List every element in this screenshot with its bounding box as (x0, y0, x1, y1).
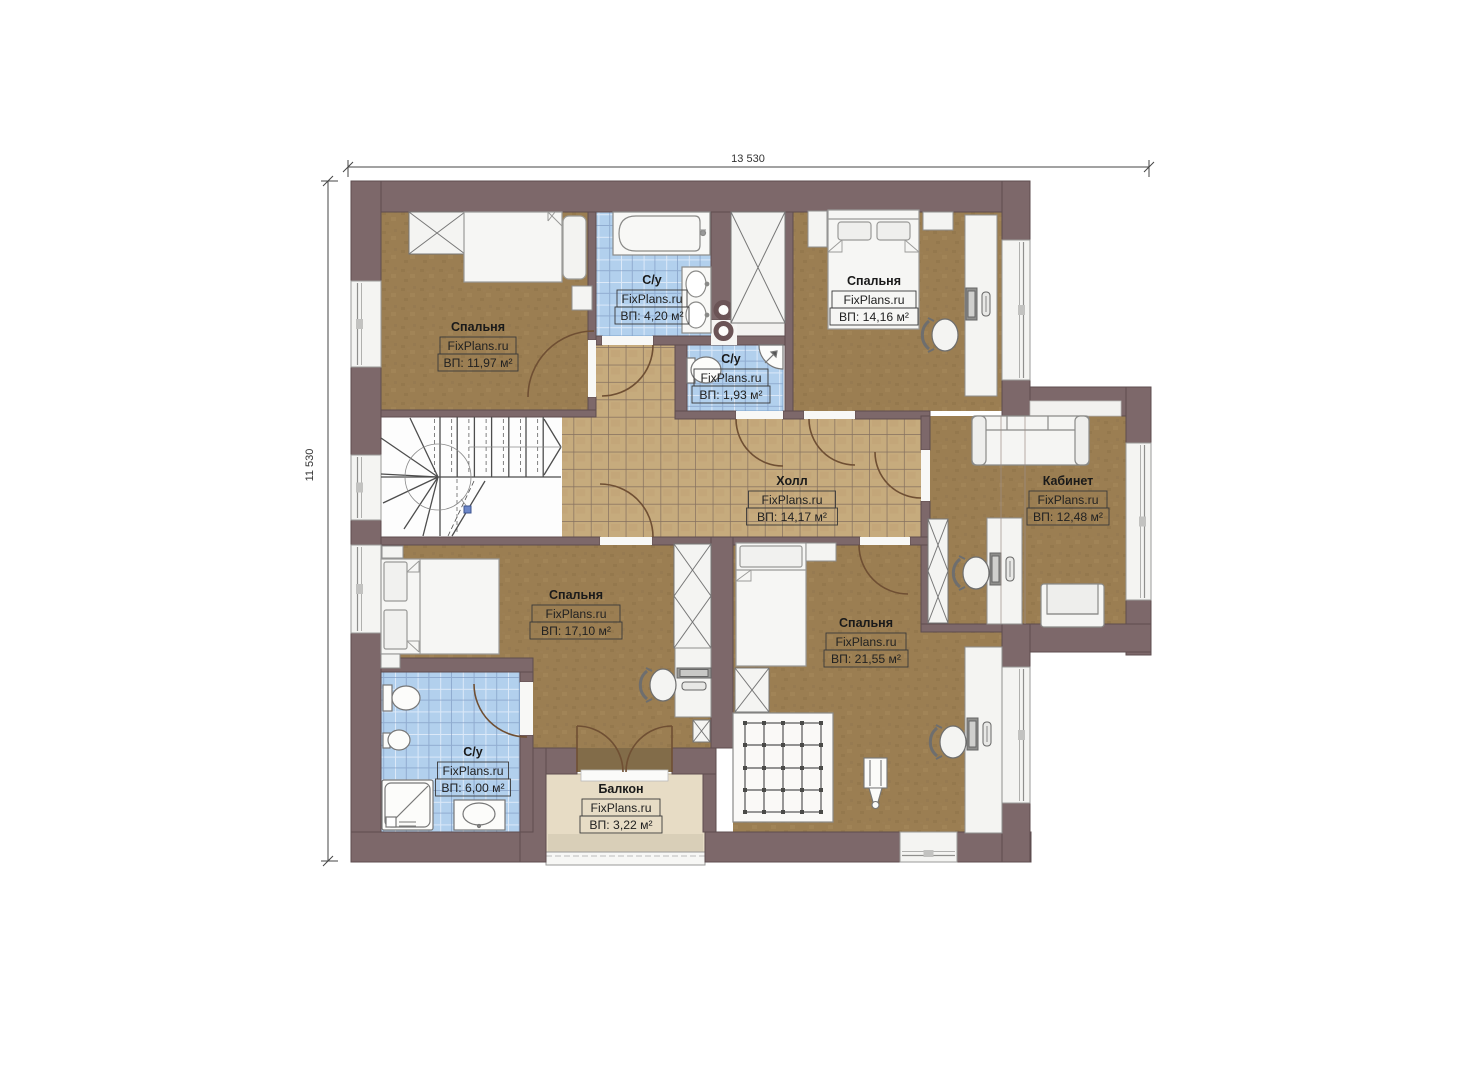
svg-text:11 530: 11 530 (304, 449, 316, 482)
svg-text:FixPlans.ru: FixPlans.ru (443, 764, 504, 778)
svg-text:Спальня: Спальня (847, 274, 901, 288)
svg-text:ВП: 3,22 м²: ВП: 3,22 м² (589, 818, 652, 832)
svg-text:С/у: С/у (463, 745, 483, 759)
svg-text:ВП: 4,20 м²: ВП: 4,20 м² (620, 309, 683, 323)
svg-text:С/у: С/у (721, 352, 741, 366)
svg-text:FixPlans.ru: FixPlans.ru (844, 293, 905, 307)
svg-text:ВП: 6,00 м²: ВП: 6,00 м² (441, 781, 504, 795)
svg-text:FixPlans.ru: FixPlans.ru (762, 493, 823, 507)
svg-text:FixPlans.ru: FixPlans.ru (448, 339, 509, 353)
svg-text:Холл: Холл (776, 474, 807, 488)
svg-text:Кабинет: Кабинет (1043, 474, 1094, 488)
svg-text:Спальня: Спальня (839, 616, 893, 630)
svg-text:FixPlans.ru: FixPlans.ru (622, 292, 683, 306)
svg-text:FixPlans.ru: FixPlans.ru (546, 607, 607, 621)
svg-text:FixPlans.ru: FixPlans.ru (836, 635, 897, 649)
svg-text:С/у: С/у (642, 273, 662, 287)
svg-text:ВП: 12,48 м²: ВП: 12,48 м² (1033, 510, 1103, 524)
svg-text:FixPlans.ru: FixPlans.ru (591, 801, 652, 815)
svg-text:ВП: 14,17 м²: ВП: 14,17 м² (757, 510, 827, 524)
svg-text:FixPlans.ru: FixPlans.ru (1038, 493, 1099, 507)
svg-text:ВП: 14,16 м²: ВП: 14,16 м² (839, 310, 909, 324)
svg-text:13 530: 13 530 (731, 153, 765, 165)
svg-text:ВП: 11,97 м²: ВП: 11,97 м² (443, 356, 512, 370)
svg-text:ВП: 21,55 м²: ВП: 21,55 м² (831, 652, 901, 666)
svg-text:Спальня: Спальня (549, 588, 603, 602)
svg-text:FixPlans.ru: FixPlans.ru (701, 371, 762, 385)
svg-text:Спальня: Спальня (451, 320, 505, 334)
svg-text:ВП: 1,93 м²: ВП: 1,93 м² (699, 388, 762, 402)
svg-text:Балкон: Балкон (598, 782, 643, 796)
svg-text:ВП: 17,10 м²: ВП: 17,10 м² (541, 624, 611, 638)
